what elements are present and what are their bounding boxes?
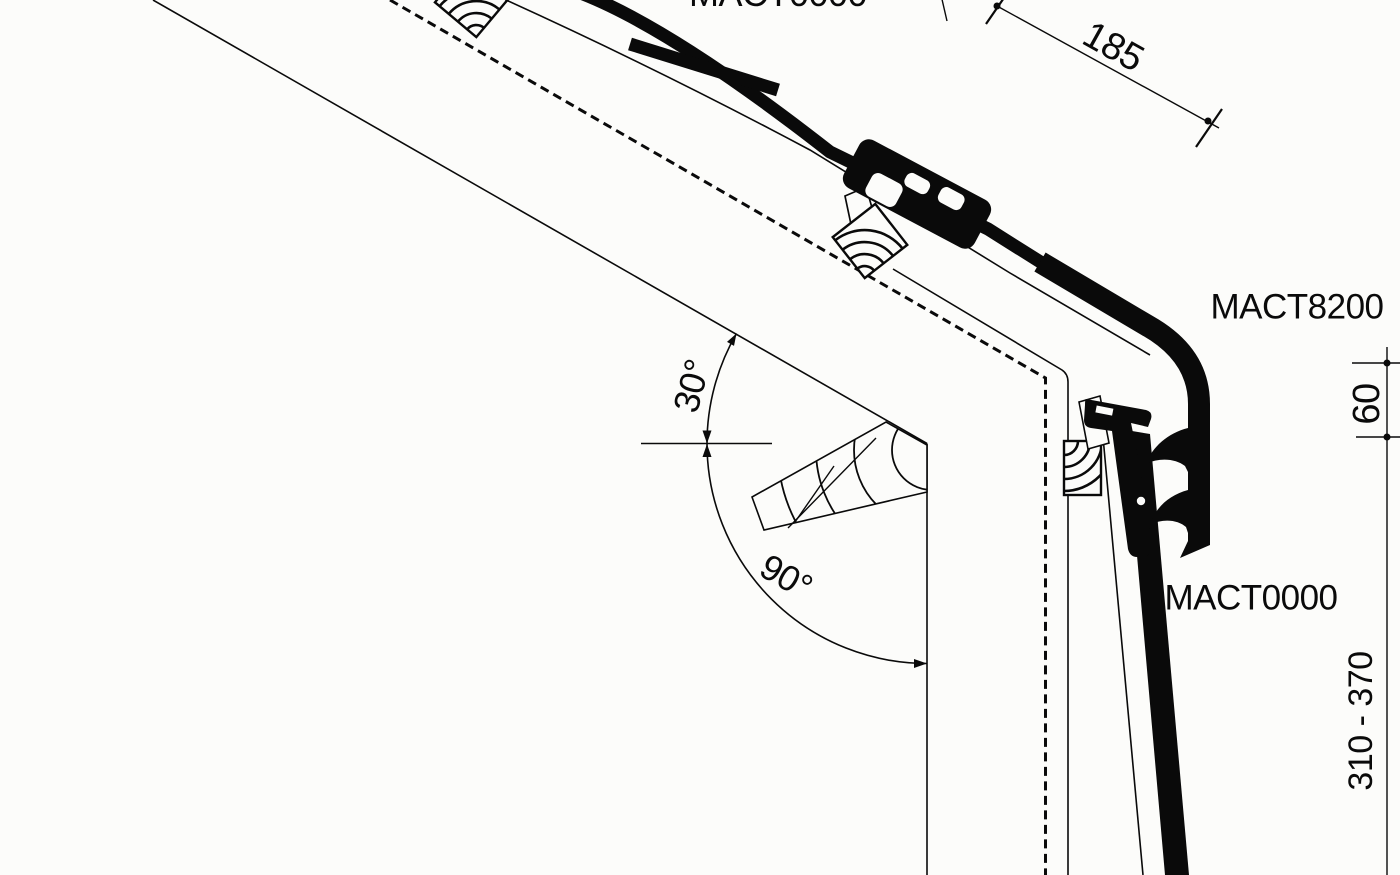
section-drawing — [0, 0, 1400, 875]
sheathing-line — [506, 0, 1150, 355]
label-dimension-60: 60 — [1348, 383, 1386, 424]
label-corner-profile: MACT8200 — [1210, 290, 1383, 325]
roof-and-wall-lines — [153, 0, 1150, 875]
wood-block-top — [409, 0, 544, 105]
label-top-profile: MACT0000 — [689, 0, 867, 12]
dimension-60-and-310-370 — [1352, 347, 1400, 875]
wood-block-roof — [797, 204, 932, 346]
technical-drawing-page: { "drawing": { "type": "roof-edge cross-… — [0, 0, 1400, 875]
rafter-end-grain — [752, 296, 1086, 604]
dimension-185 — [941, 0, 1222, 147]
label-dimension-310-370: 310 - 370 — [1344, 651, 1378, 790]
wall-front-line — [893, 269, 1068, 875]
label-wall-profile: MACT0000 — [1164, 581, 1337, 616]
membrane-dashed-line — [390, 0, 1046, 875]
ceiling-line — [153, 0, 927, 444]
